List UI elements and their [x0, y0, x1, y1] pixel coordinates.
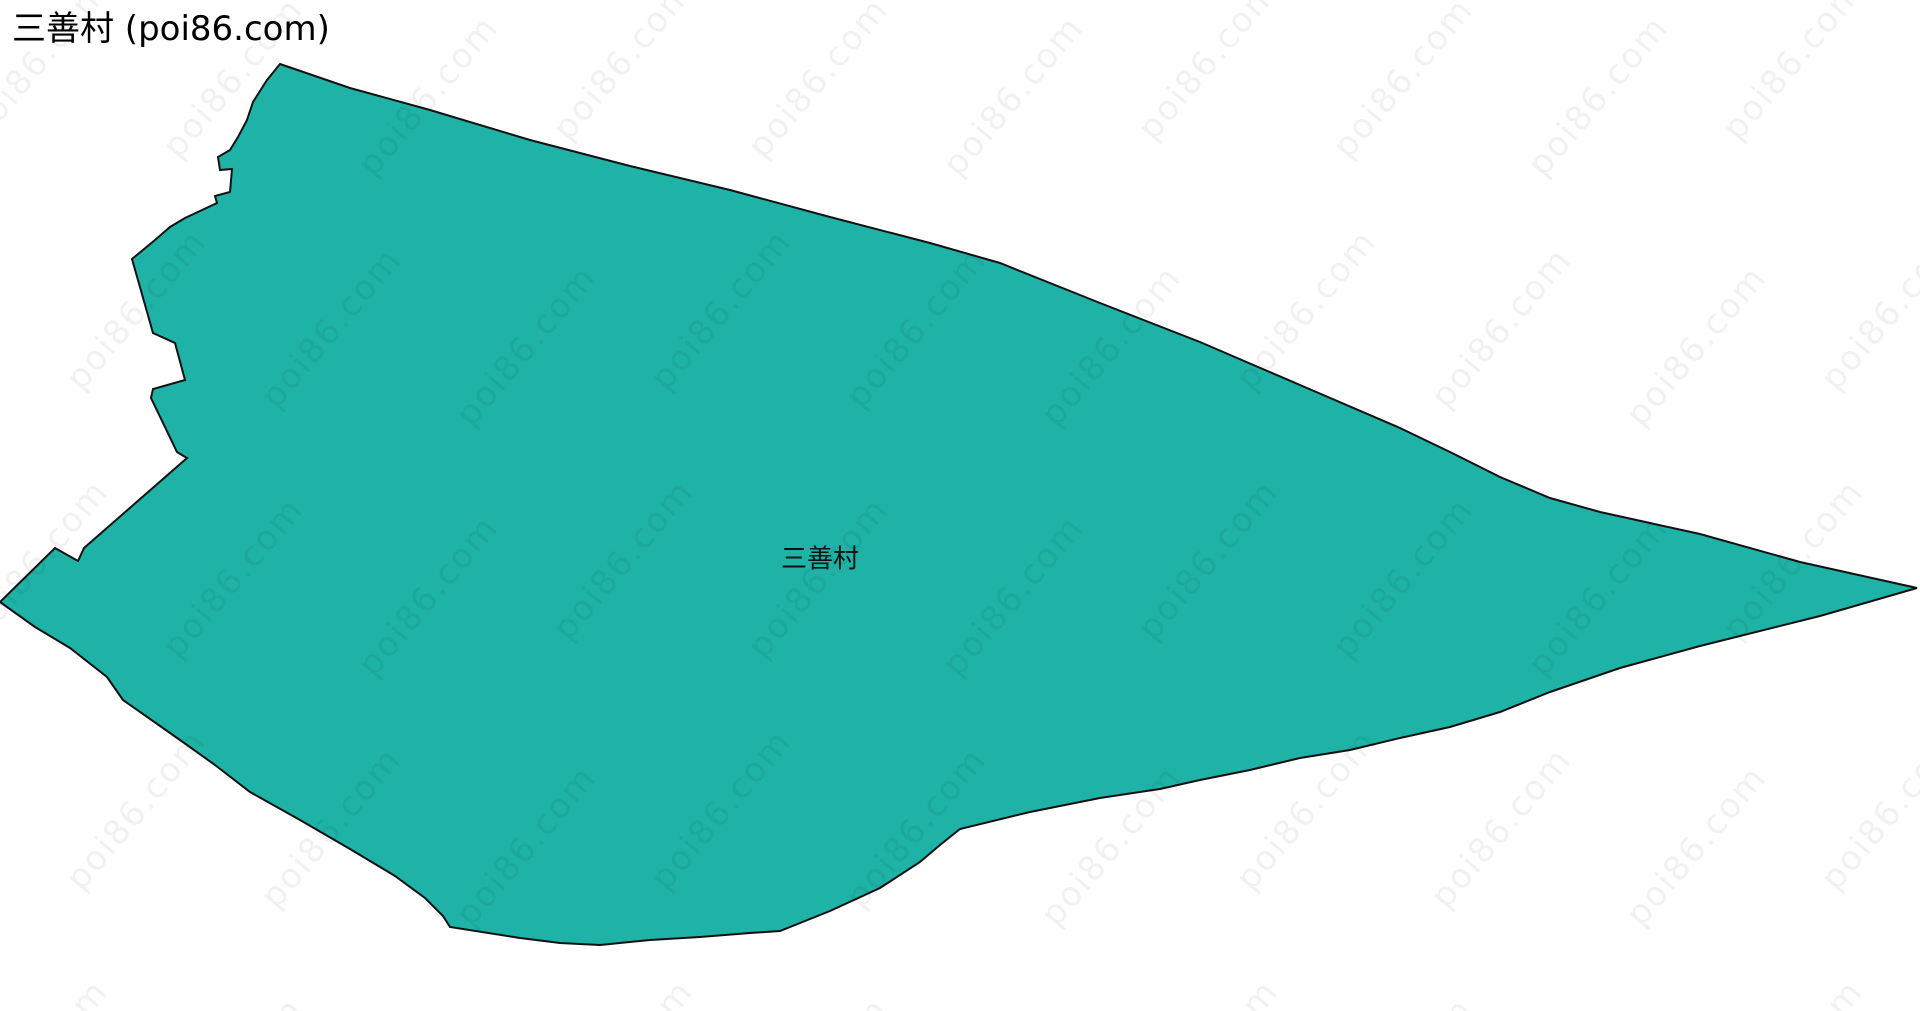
region-map-svg [0, 0, 1920, 1011]
page-title: 三善村 (poi86.com) [12, 8, 330, 51]
region-polygon [0, 64, 1917, 945]
region-label: 三善村 [781, 539, 859, 576]
map-canvas: poi86.compoi86.compoi86.compoi86.compoi8… [0, 0, 1920, 1011]
